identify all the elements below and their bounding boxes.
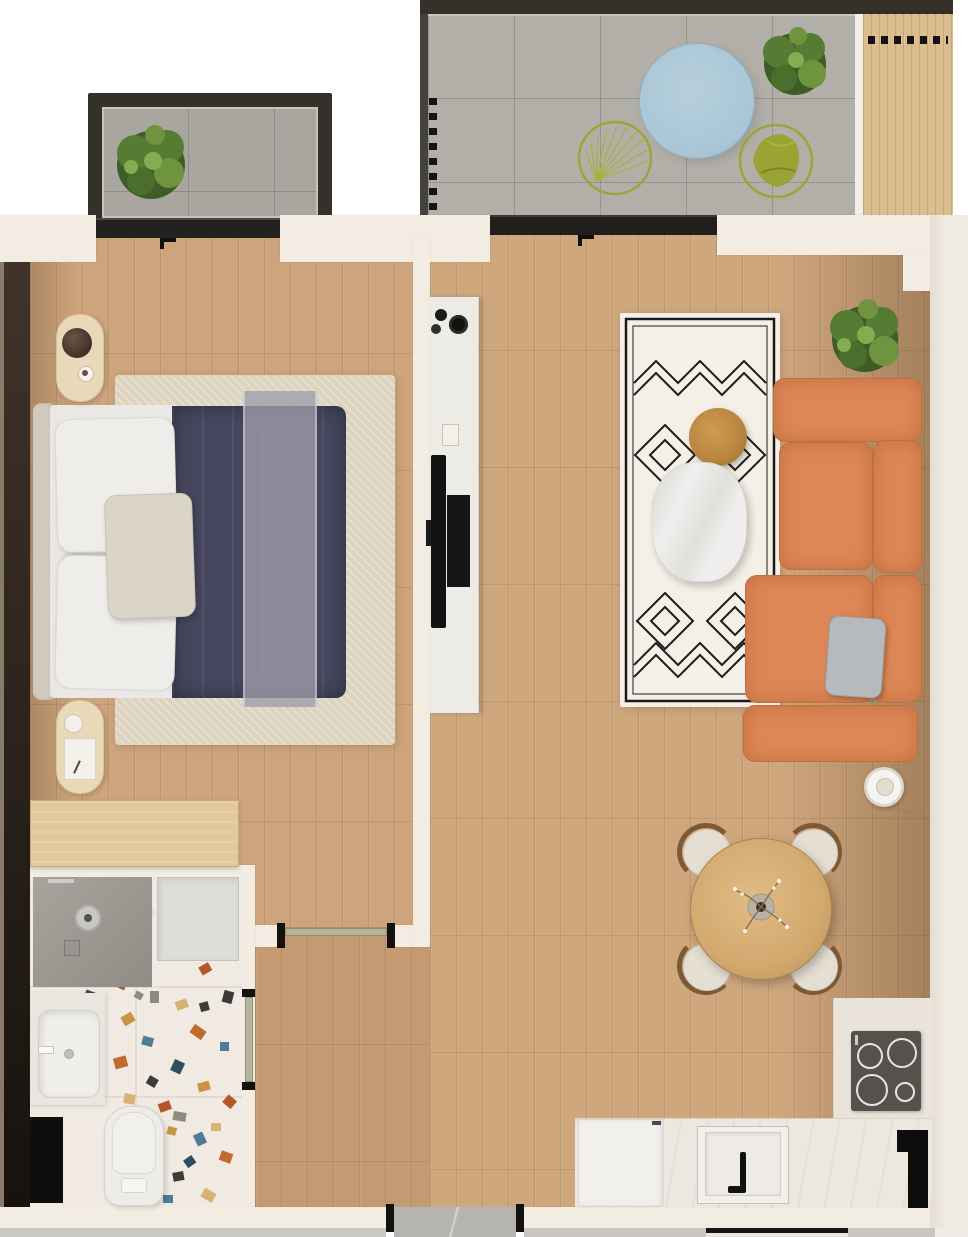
wall-divider [413,237,430,947]
cooktop-burner-3 [856,1074,888,1106]
console-vase-mini [431,324,441,334]
console-vase-large [449,315,468,334]
bedroom-door-leaf [285,928,387,936]
bathroom-door-jamb-bottom [242,1082,255,1090]
shower-head-center [84,914,92,922]
wall-bottom-left [0,1207,386,1228]
balcony-plant [101,113,201,213]
bedroom-window [96,218,280,238]
floor-plan [0,0,968,1237]
bathroom-dark-mat [30,1117,63,1203]
exterior-corner [935,1228,968,1237]
shower-drain [64,940,80,956]
shower-mixer [48,879,74,883]
corridor-floor [255,927,430,1207]
nightstand-top [56,314,104,402]
floor-lamp-bulb [876,778,894,796]
terrace-door-handle-tip [578,235,582,246]
terrace-wood-screen [863,14,953,215]
terrace-left-frame [420,14,428,215]
wall-top-left [0,215,96,262]
bedroom-door-jamb-right [387,923,395,948]
bathroom-door-jamb-top [242,989,255,997]
tv [431,455,446,628]
nightstand-bowl [62,328,92,358]
toilet-seat [112,1112,156,1174]
wall-right [930,215,968,1237]
terrace-louver-slats [429,98,437,216]
entry-tile [394,1207,516,1237]
terrace-plant [748,16,842,110]
coffee-table-marble [652,462,747,582]
sofa-gray-pillow [824,615,886,699]
console-vase-small [435,309,447,321]
entrance-jamb-right [516,1204,524,1232]
exterior-strip-mid [524,1228,706,1237]
cooktop-burner-4 [895,1082,915,1102]
sofa-back-upper [873,440,922,573]
bedroom-desk [30,800,239,867]
toilet-flush-plate [121,1178,147,1193]
nightstand2-cup [64,714,83,733]
sink-faucet-stem [740,1152,746,1190]
shower-tray [157,877,239,961]
living-plant [816,289,914,387]
screen-slats [868,36,948,44]
cooktop-burner-2 [887,1038,917,1068]
bed-accent-pillow [104,493,196,620]
sink-faucet-base [728,1186,746,1193]
exterior-tile-strip-left [0,1228,386,1237]
entrance-jamb-left [386,1204,394,1232]
wire-lounge-chair [576,119,654,197]
table-vase-flowers [720,866,800,946]
nightstand2-tray [64,738,96,780]
terrace-sliding-door [490,215,717,235]
nightstand-cup-inner [82,370,88,376]
exterior-strip-right [848,1228,935,1237]
tv-stand [426,520,431,546]
cooktop-burner-1 [857,1043,883,1069]
sofa-seat-upper [779,442,873,570]
bedroom-door-jamb-left [277,923,285,948]
tall-black-unit-top [897,1130,928,1152]
terrace-top-frame [420,0,953,14]
shower-floor [33,877,152,987]
wall-bedroom-door-right [394,925,413,947]
side-table [689,408,747,466]
wall-top-right [717,215,935,255]
sink-faucet-bath [38,1046,54,1054]
console-frame [442,424,459,446]
bedroom-window-handle-tip [160,238,164,249]
bathroom-door-leaf [245,997,253,1082]
refrigerator [578,1119,664,1207]
wall-top-mid [280,215,490,262]
sink-drain-bath [64,1049,74,1059]
tall-black-unit-body [908,1152,928,1208]
cooktop-controls [855,1035,858,1045]
wardrobe-edge [0,262,4,1207]
wardrobe-dark-wall [4,262,30,1207]
media-box [447,495,470,587]
sofa-chaise [773,378,922,442]
sofa [743,375,923,765]
bed-throw-blanket [243,391,317,707]
terrace-gap [855,14,863,215]
refrigerator-handle [652,1121,661,1125]
green-lounge-chair [737,121,815,199]
exterior-window-sill [706,1228,848,1237]
wall-bottom-right [524,1207,935,1228]
sofa-arm-bottom [743,705,918,762]
